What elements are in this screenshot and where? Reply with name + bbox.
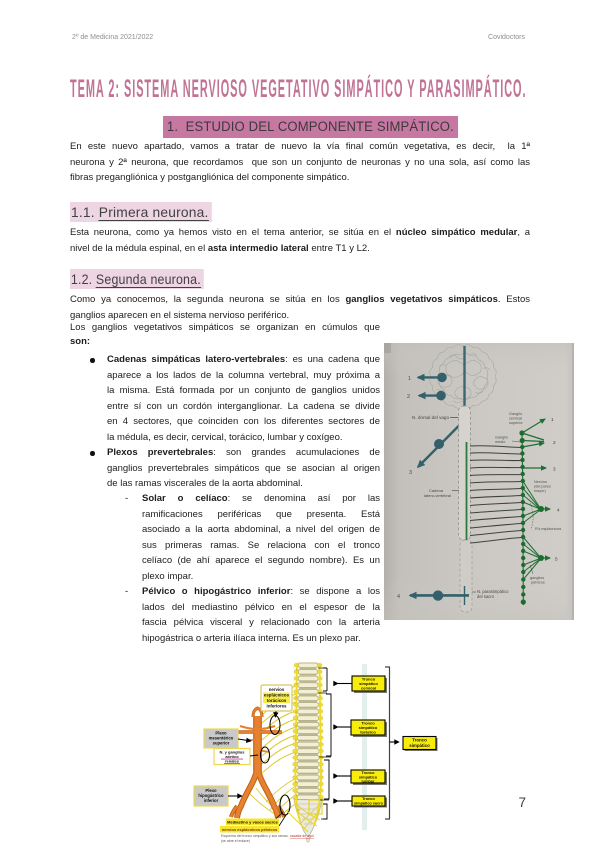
svg-text:2: 2 [407,394,410,400]
svg-text:(del pares: (del pares [534,485,551,489]
svg-text:latero-vertebral: latero-vertebral [424,493,451,498]
svg-text:renales: renales [225,759,240,764]
svg-text:1: 1 [408,376,411,382]
svg-text:Ganglio: Ganglio [509,412,522,416]
svg-text:4: 4 [557,508,560,513]
svg-text:torácicos: torácicos [267,698,287,703]
svg-text:Nervios: Nervios [534,480,547,484]
svg-text:2: 2 [553,440,556,445]
svg-text:(se abre el enlace): (se abre el enlace) [221,839,250,843]
svg-text:cervical: cervical [509,417,522,421]
svg-text:medio: medio [495,440,505,444]
svg-text:Esquema del tronco simpático y: Esquema del tronco simpático y sus ramas… [221,834,289,838]
svg-text:esplácnicos: esplácnicos [264,693,290,698]
svg-text:simpático: simpático [409,743,430,748]
svg-text:3: 3 [553,467,556,472]
svg-text:nervios: nervios [269,687,285,692]
svg-text:N. dorsal del vago: N. dorsal del vago [412,415,449,420]
svg-text:cervical: cervical [361,686,376,691]
svg-text:Mediastino y vasos sacros: Mediastino y vasos sacros [227,820,278,825]
svg-text:5: 5 [555,557,558,562]
svg-text:torácico: torácico [360,730,376,735]
svg-text:sacada de aquí: sacada de aquí [290,834,314,838]
svg-text:Ganglio: Ganglio [495,436,508,440]
svg-text:1: 1 [551,417,554,422]
svg-text:del sacro: del sacro [477,594,495,599]
svg-text:inferior: inferior [204,798,219,803]
svg-text:superior: superior [213,741,230,746]
svg-text:Tronco: Tronco [412,738,427,743]
svg-text:pélvicos: pélvicos [531,581,545,585]
svg-text:ganglios: ganglios [530,576,544,580]
svg-text:R's esplácnicos: R's esplácnicos [535,527,561,531]
svg-text:3: 3 [409,470,412,476]
svg-text:lumbar: lumbar [362,779,375,784]
svg-text:Tronco: Tronco [362,797,375,801]
svg-text:nervios esplácnicos pélvicos: nervios esplácnicos pélvicos [222,827,278,832]
svg-text:4: 4 [397,594,400,600]
svg-text:mayor): mayor) [534,489,547,493]
svg-text:superior: superior [509,421,523,425]
svg-text:simpático sacro: simpático sacro [354,802,384,806]
svg-text:inferiores: inferiores [266,704,287,709]
